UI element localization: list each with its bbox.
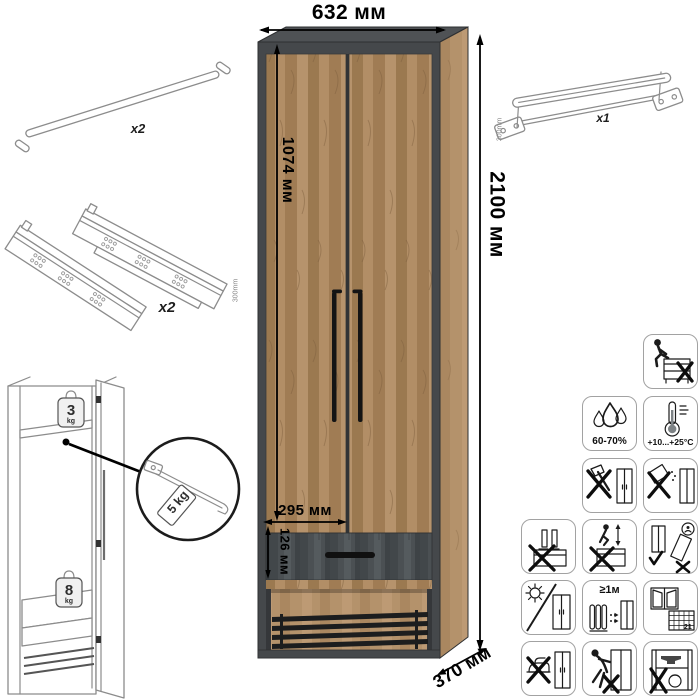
slides-size-label: 300mm [233,269,240,313]
rail-size-label: 300mm [497,108,504,152]
no-hot-objects-icon [522,642,577,697]
dim-inner-height: 1074 мм [279,120,295,220]
icon-no-dragging [582,641,637,696]
icon-no-overload [643,641,698,696]
heater-distance-label: ≥1м [583,585,636,596]
handle-qty-label: x2 [110,122,166,135]
hinge-icon [96,636,101,643]
no-overload-icon [644,642,699,697]
slides-qty-label: x2 [137,300,197,315]
humidity-label: 60-70% [583,437,636,447]
icon-heater-distance: ≥1м [582,580,637,635]
dim-niche-width: 295 мм [262,503,348,518]
icon-no-hot-objects [521,641,576,696]
no-impact-icon [583,459,638,514]
icon-no-sunlight [521,580,576,635]
furniture-dimension-diagram: 632 мм 2100 мм 1074 мм 295 мм 126 мм 370… [0,0,700,700]
no-standing-icon [522,520,577,575]
dim-width: 632 мм [258,2,440,23]
dim-height: 2100 мм [487,160,508,270]
no-dragging-icon [583,642,638,697]
shelf-load-value: 3 [58,403,84,418]
no-sitting-icon [644,335,699,390]
icon-no-jumping [582,519,637,574]
part-hanger-rail [494,72,683,140]
icon-ventilation: 21 [643,580,698,635]
rail-qty-label: x1 [580,112,626,124]
drawer-handle [325,552,375,558]
no-liquids-icon [644,459,699,514]
shelf-load-unit: kg [58,418,84,425]
temperature-label: +10...+25°C [644,438,697,447]
icon-transport-upright [643,519,698,574]
hinge-icon [96,540,101,547]
icon-no-liquids [643,458,698,513]
icon-no-standing [521,519,576,574]
drawer-load-value: 8 [56,583,82,598]
part-door-handle [14,61,231,153]
wardrobe-plinth [258,650,440,658]
wardrobe-side-panel [440,27,468,658]
no-sunlight-icon [522,581,577,636]
door-gap [346,54,349,533]
icon-temperature: +10...+25°C [643,396,698,451]
icon-humidity: 60-70% [582,396,637,451]
dim-drawer-front: 126 мм [279,514,292,590]
ventilation-icon: 21 [644,581,699,636]
icon-no-impact [582,458,637,513]
hinge-icon [96,396,101,403]
transport-upright-icon [644,520,699,575]
drawer-load-unit: kg [56,598,82,605]
no-jumping-icon [583,520,638,575]
calendar-days: 21 [684,624,692,631]
interior-diagram [8,377,239,698]
icon-no-sitting [643,334,698,389]
